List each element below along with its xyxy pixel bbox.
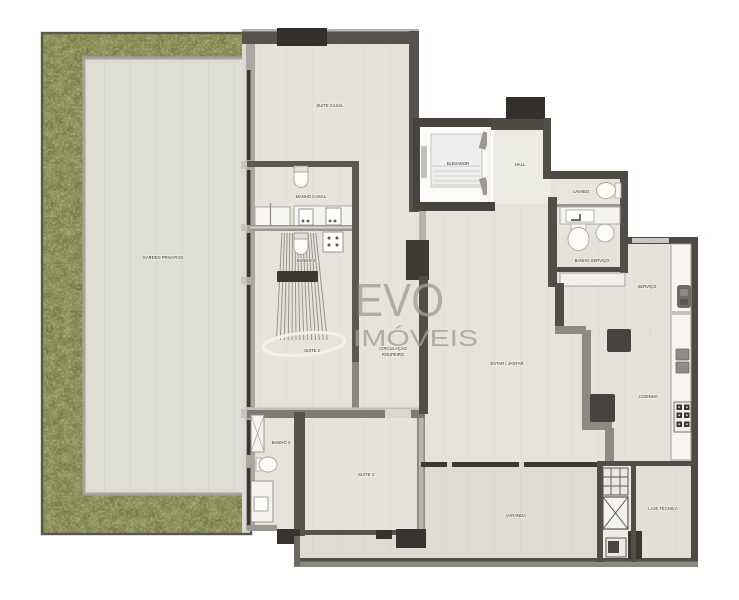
svg-text:SUITE CASAL: SUITE CASAL bbox=[316, 103, 344, 108]
svg-text:SUITE 2: SUITE 2 bbox=[304, 348, 320, 353]
svg-text:BANHO CASAL: BANHO CASAL bbox=[296, 194, 326, 199]
svg-text:ELEVADOR: ELEVADOR bbox=[447, 161, 470, 166]
svg-text:EVO: EVO bbox=[355, 274, 444, 326]
svg-text:VARANDA: VARANDA bbox=[506, 513, 526, 518]
svg-text:IMÓVEIS: IMÓVEIS bbox=[353, 325, 478, 351]
svg-text:CIRCULAÇÃO: CIRCULAÇÃO bbox=[379, 346, 407, 351]
svg-text:ROUPEIRO: ROUPEIRO bbox=[382, 352, 405, 357]
svg-text:SUITE 3: SUITE 3 bbox=[358, 472, 374, 477]
svg-text:LAVABO: LAVABO bbox=[573, 189, 590, 194]
svg-text:LAJE TÉCNICA: LAJE TÉCNICA bbox=[648, 506, 678, 511]
svg-text:BANHO SERVIÇO: BANHO SERVIÇO bbox=[575, 258, 611, 263]
svg-text:GARDEN PRIVATIVO: GARDEN PRIVATIVO bbox=[143, 255, 185, 260]
svg-text:SERVIÇO: SERVIÇO bbox=[638, 284, 658, 289]
svg-text:HALL: HALL bbox=[515, 162, 526, 167]
svg-text:ESTAR / JANTAR: ESTAR / JANTAR bbox=[490, 361, 523, 366]
svg-text:COZINHA: COZINHA bbox=[639, 394, 658, 399]
svg-text:BANHO 3: BANHO 3 bbox=[272, 440, 291, 445]
svg-text:BANHO 2: BANHO 2 bbox=[297, 258, 316, 263]
